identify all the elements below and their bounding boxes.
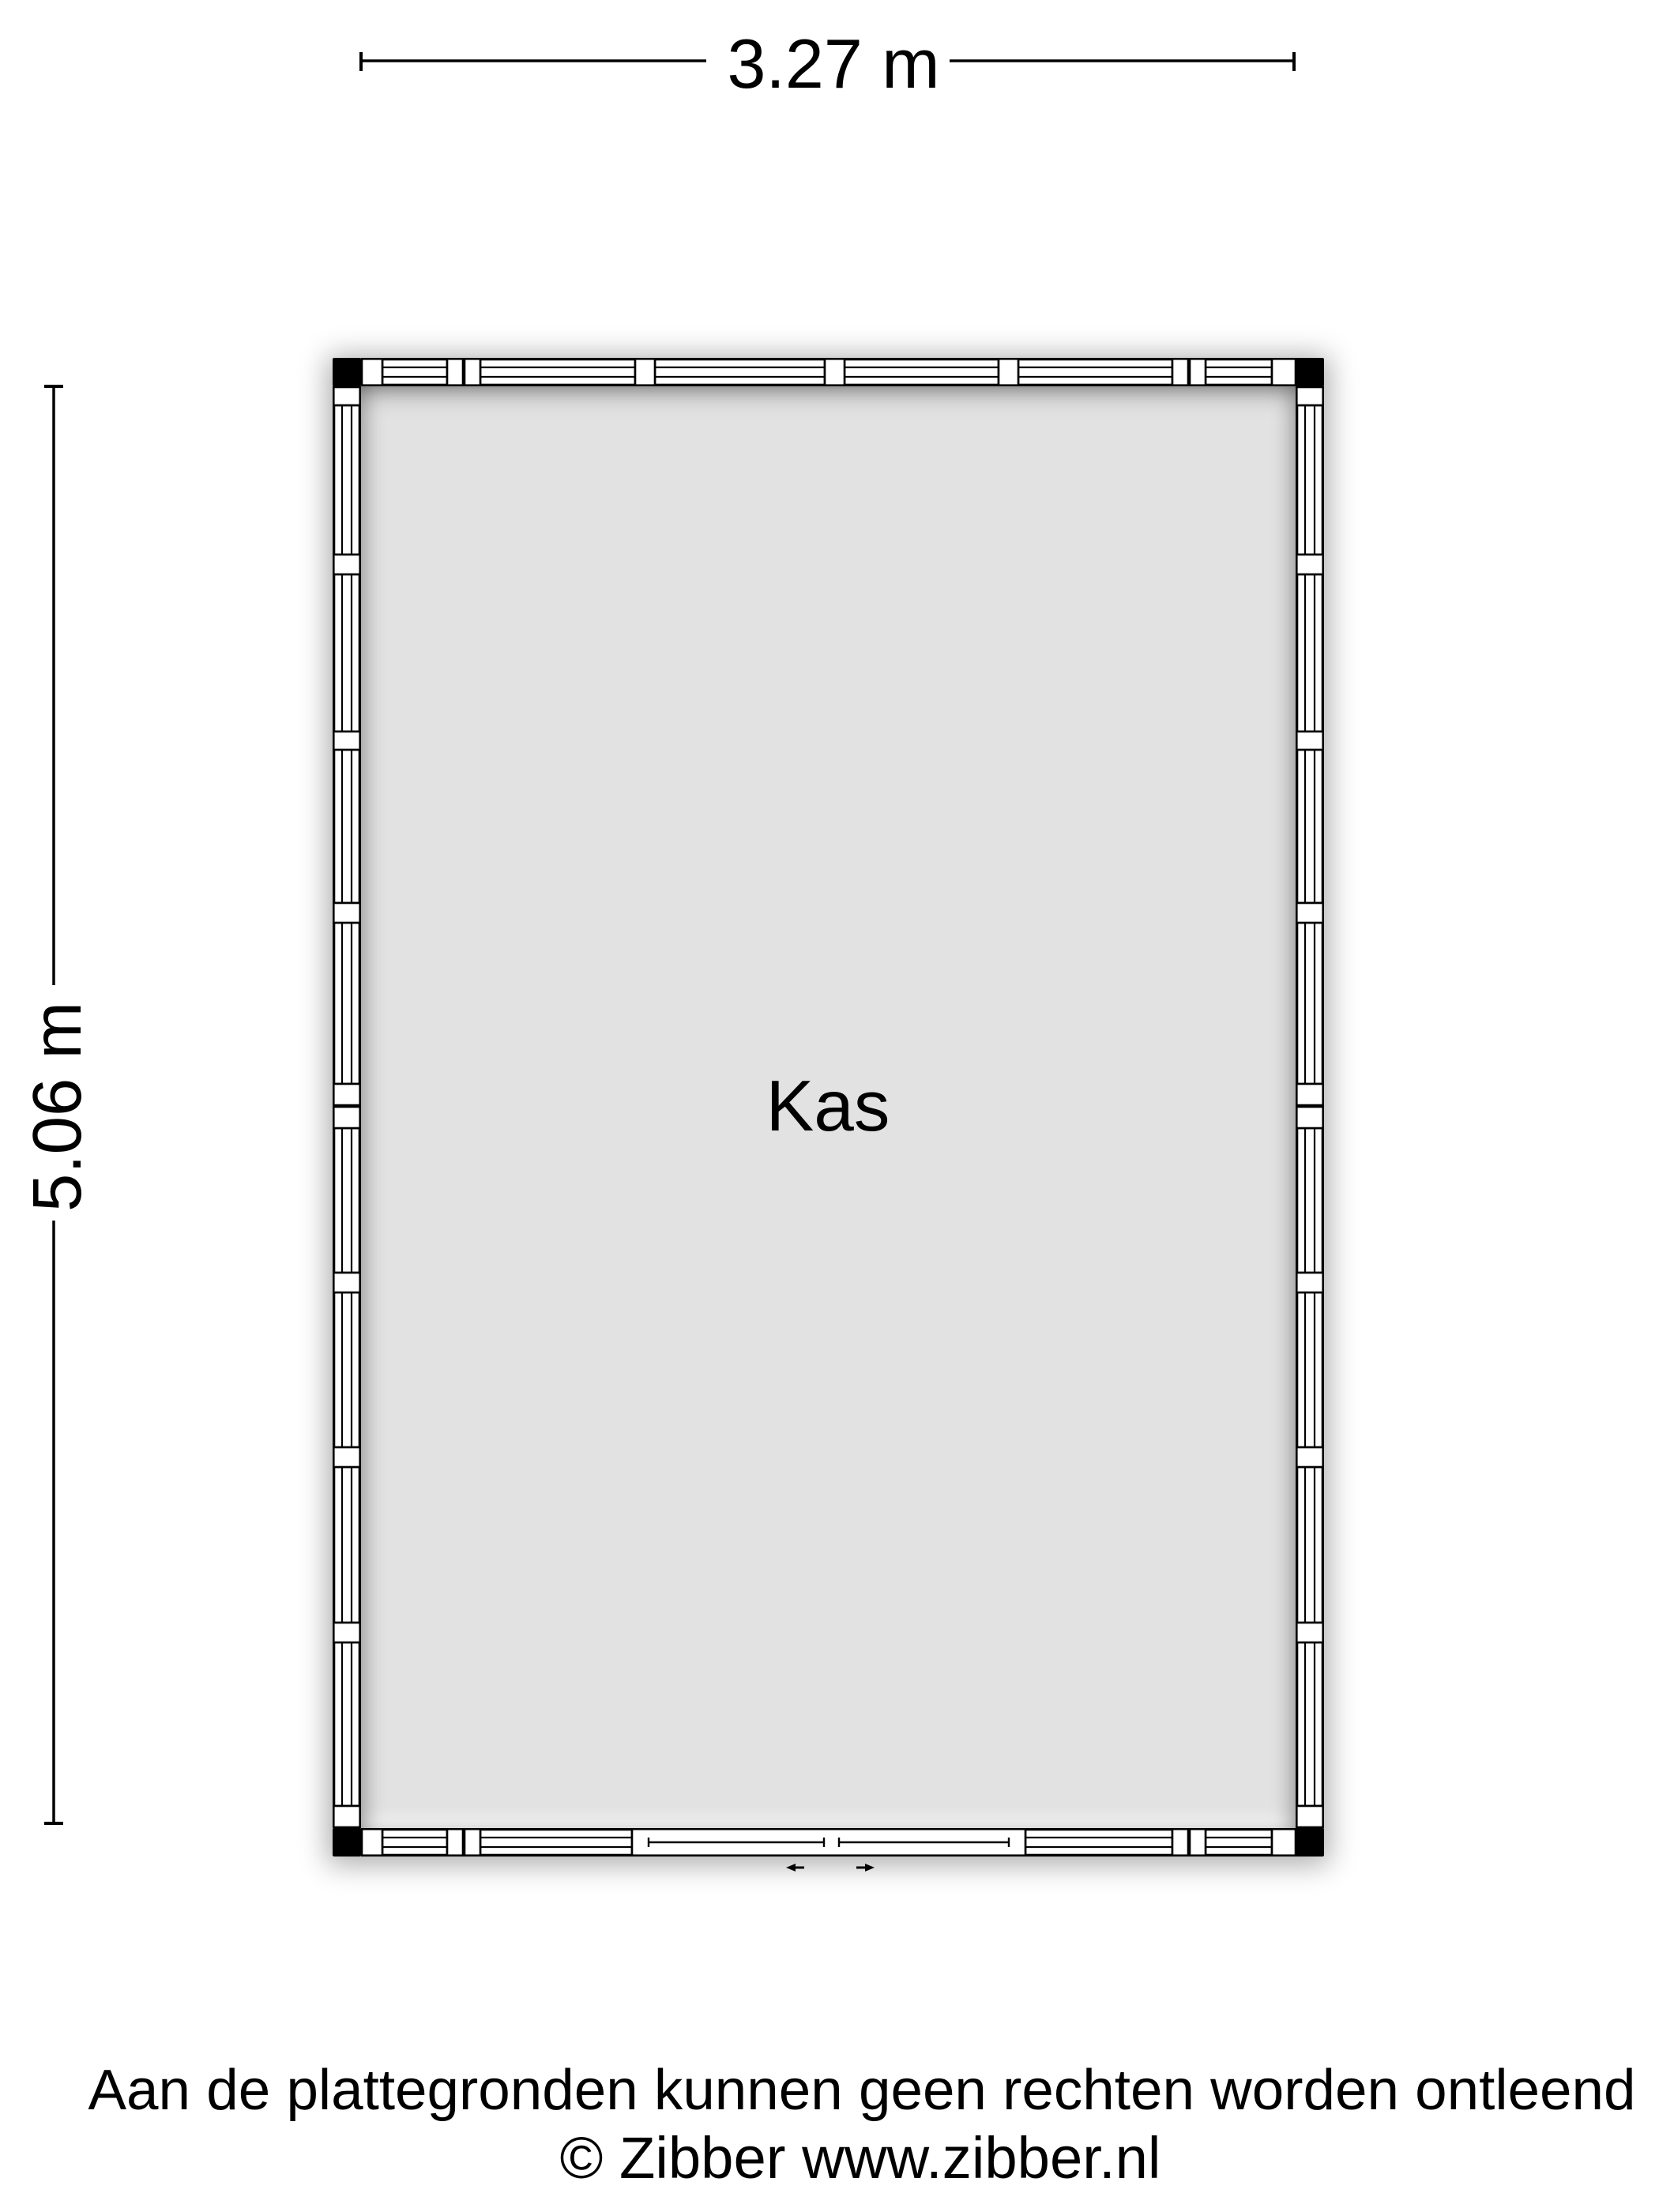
svg-text:5.06 m: 5.06 m	[19, 1002, 96, 1212]
svg-text:Aan de plattegronden kunnen ge: Aan de plattegronden kunnen geen rechten…	[88, 2058, 1636, 2122]
svg-text:3.27 m: 3.27 m	[727, 24, 939, 103]
svg-text:© Zibber www.zibber.nl: © Zibber www.zibber.nl	[560, 2125, 1161, 2191]
svg-text:Kas: Kas	[766, 1066, 890, 1146]
